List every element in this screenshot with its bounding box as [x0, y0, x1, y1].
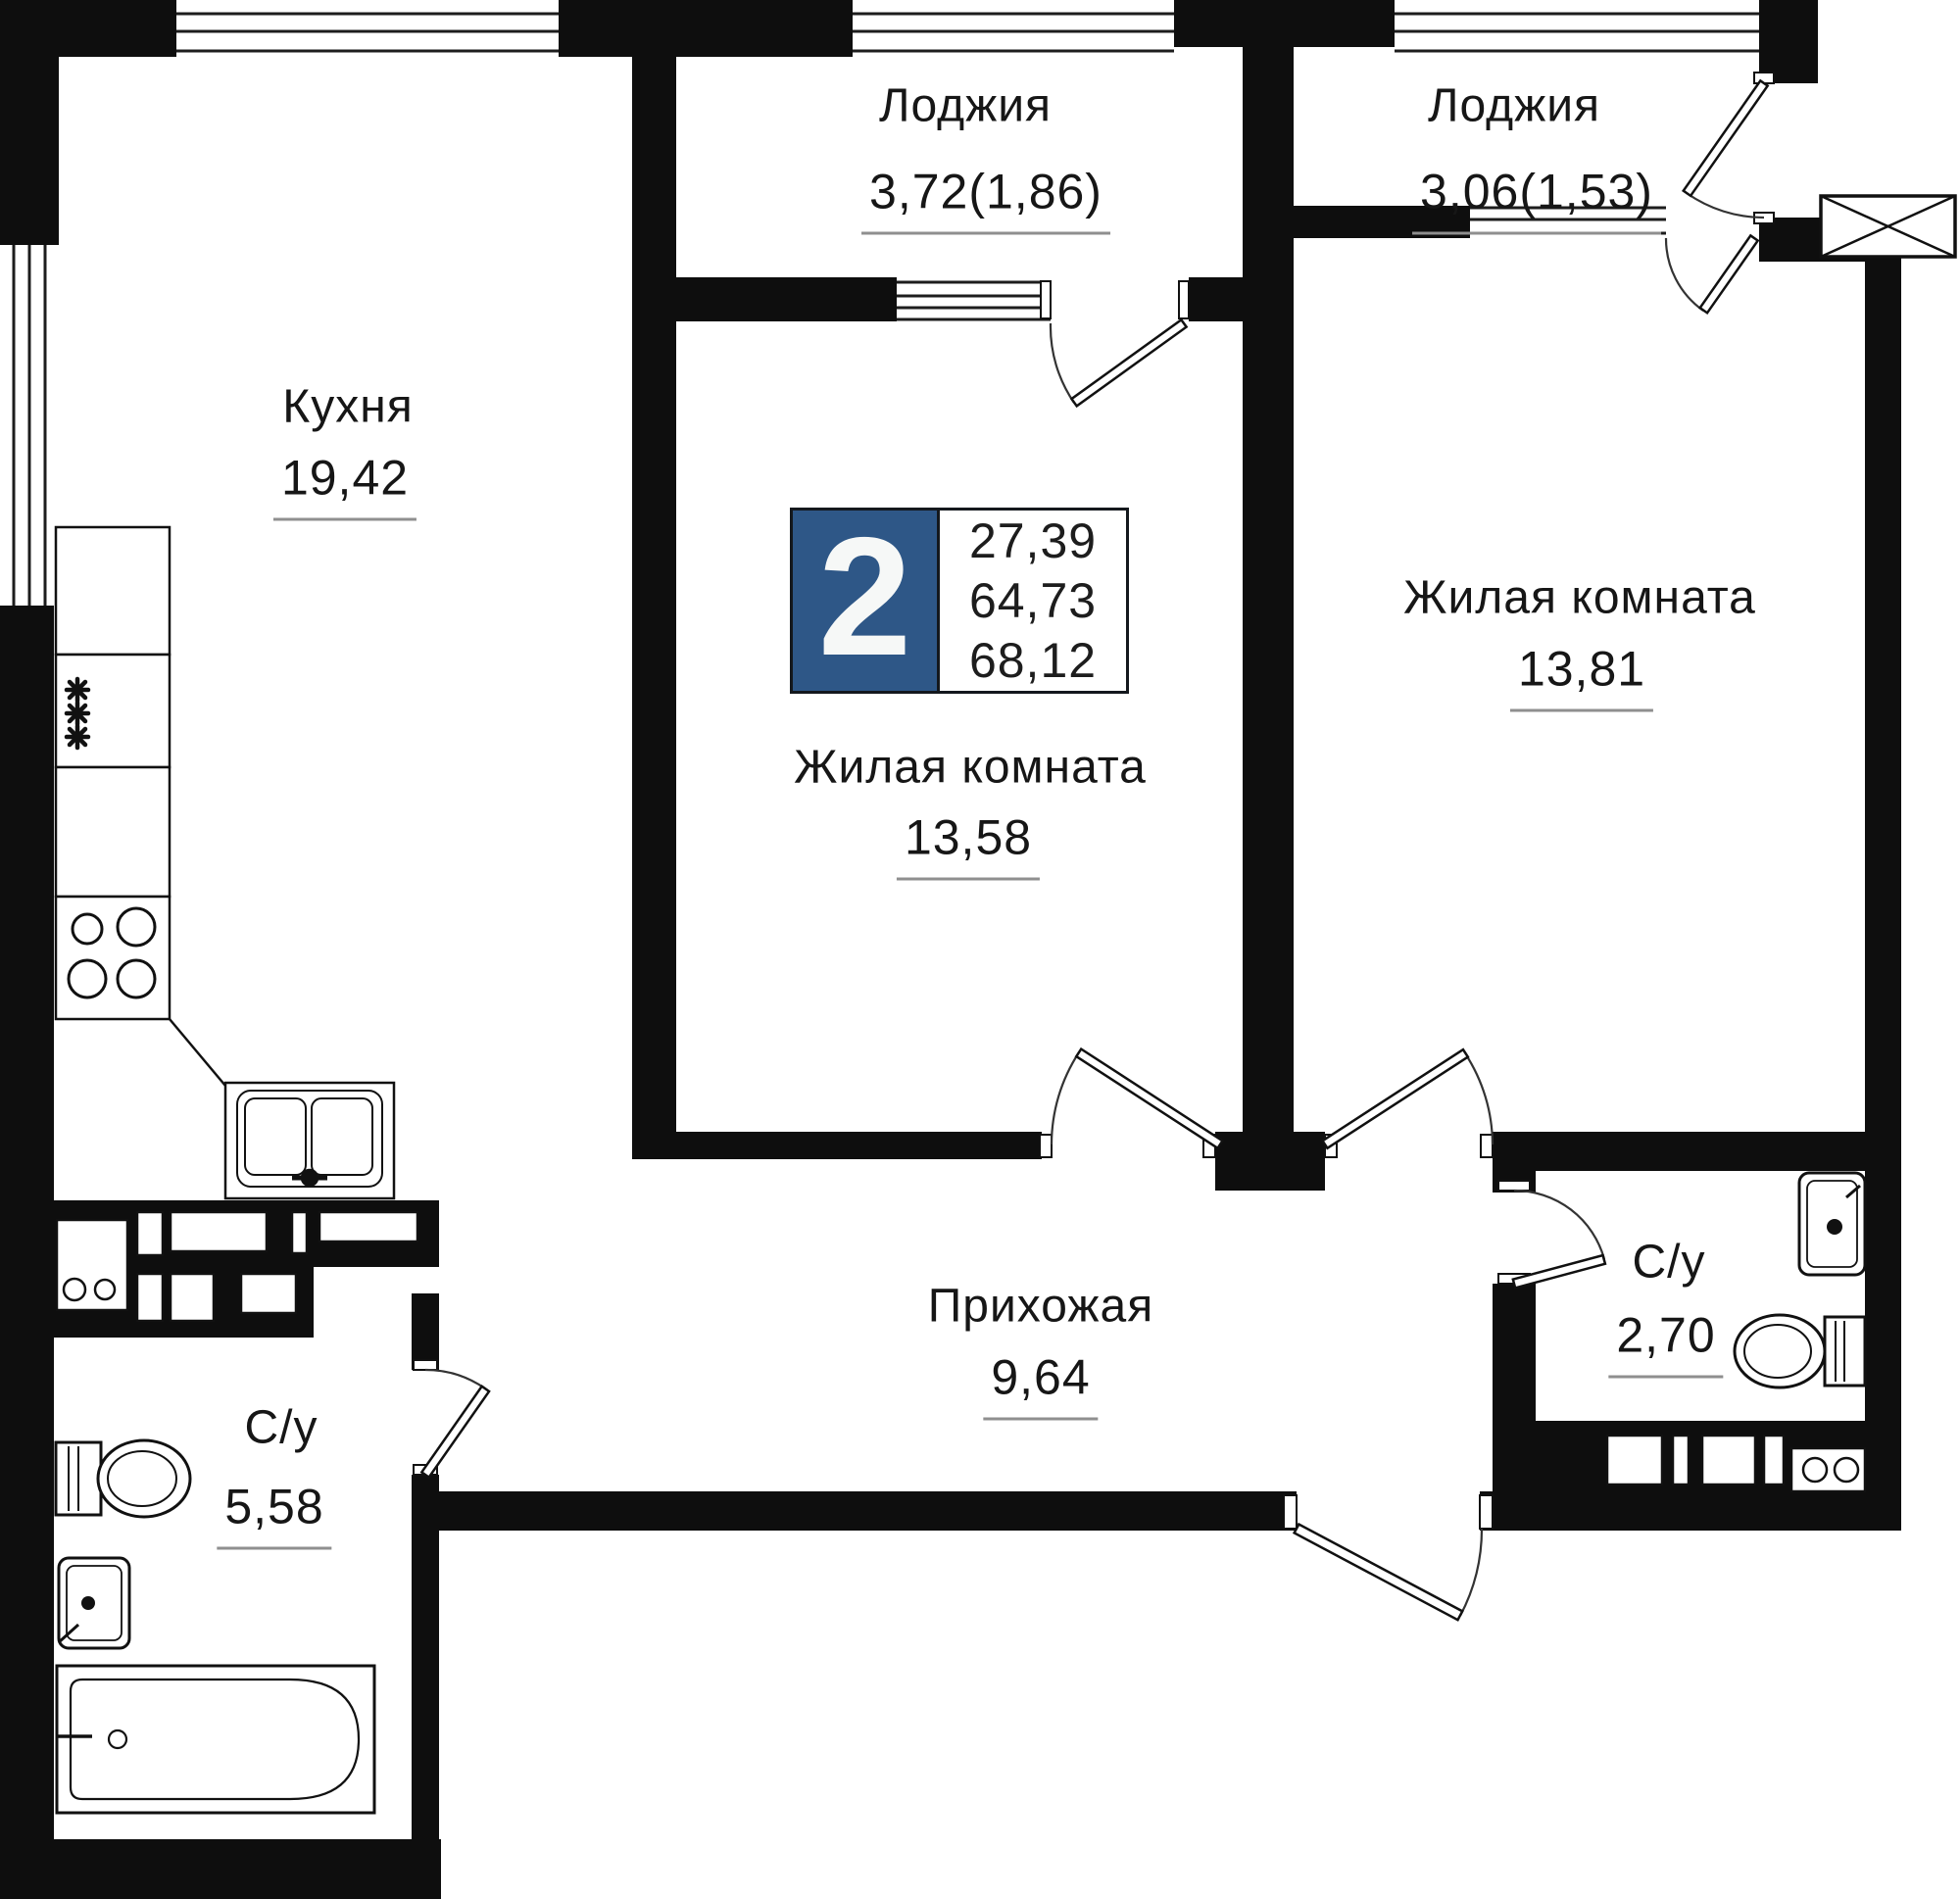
- door-arc-living2-balcony: [1666, 238, 1703, 311]
- door-arc-bath1: [425, 1370, 485, 1388]
- room-area-loggia2: 3,06(1,53): [1412, 164, 1661, 235]
- badge-areas: 27,39 64,73 68,12: [940, 511, 1126, 691]
- cabinet-icon: [56, 767, 170, 897]
- washing-machine-icon: [57, 1220, 127, 1310]
- kitchen-counter: [56, 527, 225, 1086]
- door-leaf-entrance: [1295, 1525, 1463, 1621]
- room-area-living1: 13,58: [897, 809, 1040, 881]
- badge-area-living: 27,39: [969, 511, 1097, 571]
- room-label-bath2: С/у: [1633, 1236, 1706, 1290]
- room-label-hallway: Прихожая: [928, 1280, 1153, 1334]
- room-label-loggia1: Лоджия: [879, 79, 1052, 133]
- toilet-bath2-icon: [1735, 1315, 1865, 1388]
- room-area-bath2: 2,70: [1608, 1307, 1723, 1379]
- window-loggia1-living1: [897, 282, 1051, 319]
- door-arc-living2: [1465, 1053, 1493, 1144]
- window-kitchen-left: [14, 245, 45, 606]
- door-leaf-living2-balcony: [1700, 235, 1758, 313]
- door-arc-living1: [1052, 1052, 1079, 1144]
- door-arc-entrance: [1460, 1529, 1482, 1616]
- room-area-hallway: 9,64: [983, 1349, 1098, 1421]
- room-label-loggia2: Лоджия: [1428, 79, 1600, 133]
- room-name: Кухня: [282, 381, 413, 433]
- door-leaf-living2: [1323, 1049, 1468, 1148]
- door-leaf-loggia1: [1071, 319, 1186, 406]
- door-leaf-loggia2-side: [1684, 80, 1768, 195]
- washer-bath2-icon: [1791, 1448, 1865, 1491]
- vent-shaft-icon: [1821, 196, 1955, 257]
- window-loggia1-top: [853, 14, 1174, 51]
- badge-room-count: 2: [793, 511, 940, 691]
- window-loggia2-top: [1395, 14, 1759, 51]
- room-label-living2: Жилая комната: [1403, 571, 1756, 625]
- stove-icon: [56, 897, 170, 1019]
- toilet-icon: [56, 1440, 190, 1517]
- floor-plan: Кухня 19,42 Лоджия 3,72(1,86) Лоджия 3,0…: [0, 0, 1960, 1899]
- room-area-living2: 13,81: [1510, 641, 1653, 712]
- room-label-bath1: С/у: [245, 1401, 318, 1455]
- sink-bath2-icon: [1799, 1173, 1865, 1275]
- window-kitchen-top: [176, 14, 559, 51]
- fridge-snowflake-icon: [67, 679, 88, 748]
- floor-plan-drawing: [0, 0, 1960, 1899]
- room-area-kitchen: 19,42: [273, 450, 416, 521]
- door-arc-loggia2-side: [1687, 193, 1764, 218]
- cabinet-icon: [56, 527, 170, 655]
- walls: [0, 0, 1901, 1899]
- room-area-loggia1: 3,72(1,86): [861, 164, 1110, 235]
- room-label-kitchen: Кухня: [282, 380, 413, 434]
- door-arc-bath2: [1514, 1191, 1604, 1259]
- door-leaf-bath2: [1513, 1255, 1605, 1288]
- apartment-badge: 2 27,39 64,73 68,12: [790, 508, 1129, 694]
- room-area: 19,42: [273, 450, 416, 521]
- room-area-bath1: 5,58: [217, 1479, 331, 1550]
- bathtub-icon: [57, 1666, 374, 1813]
- door-leaf-living1: [1076, 1049, 1222, 1148]
- door-leaf-bath1: [421, 1387, 489, 1478]
- badge-area-total: 68,12: [969, 631, 1097, 691]
- kitchen-sink-icon: [225, 1083, 394, 1198]
- door-arc-loggia1: [1051, 323, 1074, 403]
- sink-icon: [59, 1558, 129, 1648]
- badge-area-no-balcony: 64,73: [969, 571, 1097, 631]
- room-label-living1: Жилая комната: [794, 741, 1147, 795]
